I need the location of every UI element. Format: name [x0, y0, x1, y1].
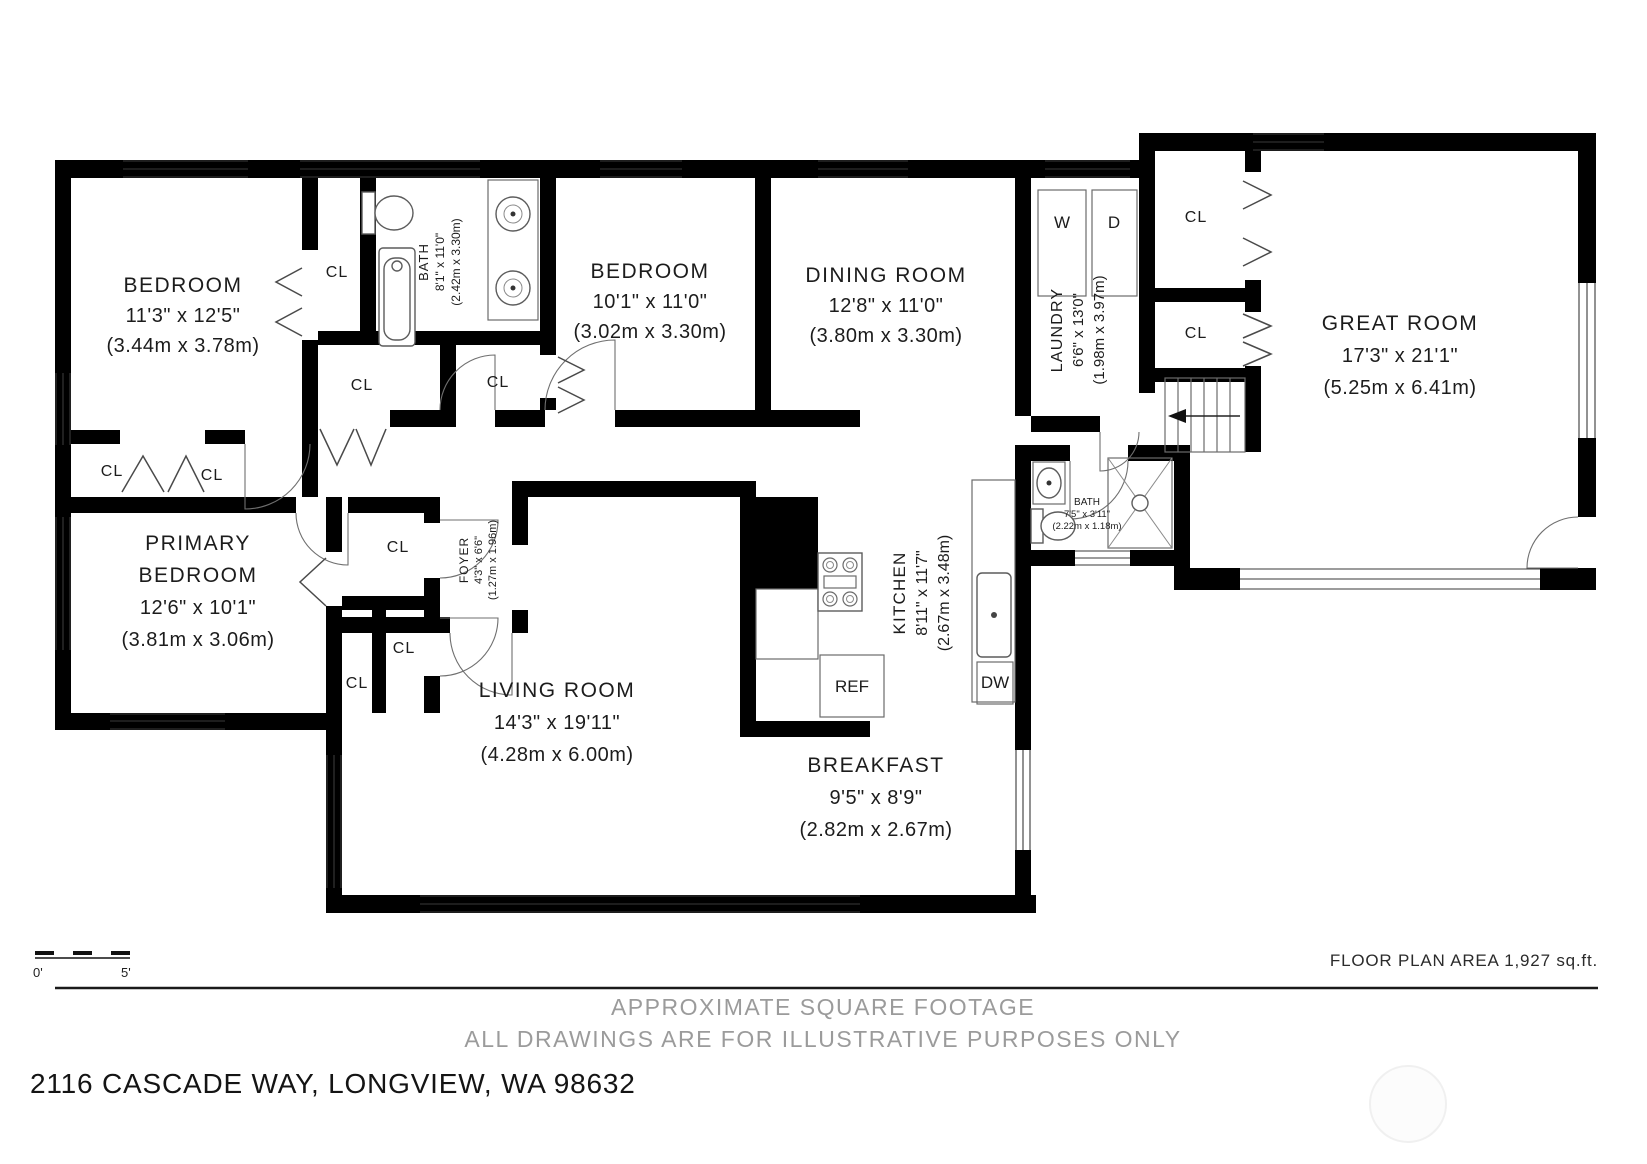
room-living-room: LIVING ROOM 14'3" x 19'11" (4.28m x 6.00… — [479, 679, 636, 766]
room-bedroom-2: BEDROOM 10'1" x 11'0" (3.02m x 3.30m) — [573, 260, 726, 343]
svg-text:(2.42m x 3.30m): (2.42m x 3.30m) — [449, 218, 463, 305]
bifold-icon — [320, 429, 354, 465]
svg-text:(3.02m x 3.30m): (3.02m x 3.30m) — [573, 321, 726, 343]
svg-text:CL: CL — [393, 640, 415, 657]
svg-text:(3.81m x 3.06m): (3.81m x 3.06m) — [121, 629, 274, 651]
svg-text:8'11" x 11'7": 8'11" x 11'7" — [914, 550, 931, 635]
bifold-icon — [122, 456, 164, 492]
svg-text:CL: CL — [1185, 209, 1207, 226]
refrigerator-label: REF — [835, 677, 869, 696]
svg-text:CL: CL — [326, 264, 348, 281]
floor-plan-area-note: FLOOR PLAN AREA 1,927 sq.ft. — [1330, 951, 1598, 970]
svg-text:(4.28m x 6.00m): (4.28m x 6.00m) — [480, 744, 633, 766]
stairs-arrow-head — [1168, 409, 1186, 423]
bifold-icon — [558, 357, 584, 383]
bifold-icon — [276, 268, 302, 296]
svg-text:(2.67m x 3.48m): (2.67m x 3.48m) — [936, 535, 953, 651]
svg-text:LAUNDRY: LAUNDRY — [1049, 288, 1066, 373]
door-arc-great-room — [1527, 517, 1578, 568]
svg-text:KITCHEN: KITCHEN — [890, 551, 909, 634]
room-laundry: LAUNDRY 6'6" x 13'0" (1.98m x 3.97m) — [1049, 275, 1108, 384]
property-address: 2116 CASCADE WAY, LONGVIEW, WA 98632 — [30, 1068, 636, 1099]
svg-text:BATH: BATH — [1074, 497, 1100, 508]
dryer-label: D — [1108, 213, 1120, 232]
shower-icon — [1108, 458, 1172, 548]
svg-text:CL: CL — [387, 539, 409, 556]
svg-text:7'5" x 3'11": 7'5" x 3'11" — [1064, 509, 1110, 520]
svg-text:17'3" x 21'1": 17'3" x 21'1" — [1342, 345, 1458, 367]
windows — [56, 134, 1595, 912]
svg-text:(5.25m x 6.41m): (5.25m x 6.41m) — [1323, 377, 1476, 399]
svg-text:14'3" x 19'11": 14'3" x 19'11" — [494, 712, 620, 734]
kitchen-sink-icon — [977, 573, 1011, 657]
svg-text:CL: CL — [351, 377, 373, 394]
walls — [55, 133, 1596, 913]
room-kitchen: KITCHEN 8'11" x 11'7" (2.67m x 3.48m) — [890, 535, 953, 651]
room-primary-bedroom: PRIMARY BEDROOM 12'6" x 10'1" (3.81m x 3… — [121, 532, 274, 651]
closet-door-marks — [122, 181, 1271, 606]
kitchen-counter — [756, 589, 818, 659]
bifold-icon — [300, 558, 326, 606]
svg-text:CL: CL — [201, 467, 223, 484]
svg-text:8'1" x 11'0": 8'1" x 11'0" — [433, 233, 447, 291]
svg-text:PRIMARY: PRIMARY — [145, 532, 251, 555]
svg-text:10'1" x 11'0": 10'1" x 11'0" — [593, 291, 708, 313]
bifold-icon — [276, 308, 302, 336]
room-dining: DINING ROOM 12'8" x 11'0" (3.80m x 3.30m… — [805, 264, 966, 347]
svg-text:(1.27m x 1.96m): (1.27m x 1.96m) — [487, 520, 499, 600]
svg-text:CL: CL — [101, 463, 123, 480]
svg-text:(3.80m x 3.30m): (3.80m x 3.30m) — [809, 325, 962, 347]
svg-text:CL: CL — [346, 675, 368, 692]
room-breakfast: BREAKFAST 9'5" x 8'9" (2.82m x 2.67m) — [799, 754, 952, 841]
svg-text:(2.22m x 1.18m): (2.22m x 1.18m) — [1052, 521, 1121, 532]
bathtub-icon — [379, 248, 415, 346]
floor-plan-canvas: BEDROOM 11'3" x 12'5" (3.44m x 3.78m) BE… — [0, 0, 1647, 1164]
bifold-icon — [1243, 342, 1271, 366]
stairs — [1165, 378, 1245, 452]
svg-text:CL: CL — [1185, 325, 1207, 342]
bifold-icon — [356, 429, 386, 465]
disclaimer-line-1: APPROXIMATE SQUARE FOOTAGE — [611, 994, 1035, 1020]
svg-text:(2.82m x 2.67m): (2.82m x 2.67m) — [799, 819, 952, 841]
washer-box — [1038, 190, 1086, 296]
disclaimer-line-2: ALL DRAWINGS ARE FOR ILLUSTRATIVE PURPOS… — [464, 1026, 1181, 1052]
bifold-icon — [558, 387, 584, 413]
double-sink-vanity-icon — [488, 180, 538, 320]
window — [1075, 551, 1130, 565]
svg-text:12'8" x 11'0": 12'8" x 11'0" — [829, 295, 944, 317]
scale-zero-label: 0' — [33, 965, 43, 980]
bifold-icon — [1243, 181, 1271, 209]
svg-text:CL: CL — [487, 374, 509, 391]
svg-text:(1.98m x 3.97m): (1.98m x 3.97m) — [1091, 275, 1108, 384]
svg-text:BEDROOM: BEDROOM — [590, 260, 709, 283]
stove-icon — [818, 553, 862, 611]
bifold-icon — [168, 456, 204, 492]
fixtures — [362, 180, 1245, 717]
bifold-icon — [1243, 314, 1271, 338]
svg-text:BREAKFAST: BREAKFAST — [807, 754, 944, 777]
bifold-icon — [1243, 238, 1271, 266]
scale-bar: 0' 5' — [33, 951, 131, 980]
washer-label: W — [1054, 213, 1070, 232]
svg-text:GREAT ROOM: GREAT ROOM — [1322, 312, 1479, 335]
room-bedroom-1: BEDROOM 11'3" x 12'5" (3.44m x 3.78m) — [106, 274, 259, 357]
watermark-circle — [1370, 1066, 1446, 1142]
room-great-room: GREAT ROOM 17'3" x 21'1" (5.25m x 6.41m) — [1322, 312, 1479, 399]
svg-text:9'5" x 8'9": 9'5" x 8'9" — [830, 787, 923, 809]
scale-five-label: 5' — [121, 965, 131, 980]
room-bath: BATH 8'1" x 11'0" (2.42m x 3.30m) — [416, 218, 463, 305]
window — [1240, 569, 1540, 589]
svg-text:11'3" x 12'5": 11'3" x 12'5" — [126, 305, 241, 327]
window — [1579, 283, 1595, 438]
svg-text:(3.44m x 3.78m): (3.44m x 3.78m) — [106, 335, 259, 357]
svg-text:BATH: BATH — [416, 243, 431, 281]
toilet-icon — [362, 192, 413, 234]
svg-text:BEDROOM: BEDROOM — [138, 564, 257, 587]
window — [1016, 750, 1030, 850]
dishwasher-label: DW — [981, 673, 1009, 692]
sink-icon — [1033, 462, 1065, 504]
room-foyer: FOYER 4'3" x 6'6" (1.27m x 1.96m) — [457, 520, 499, 600]
svg-text:DINING ROOM: DINING ROOM — [805, 264, 966, 287]
svg-text:BEDROOM: BEDROOM — [123, 274, 242, 297]
svg-text:LIVING ROOM: LIVING ROOM — [479, 679, 636, 702]
svg-text:4'3" x 6'6": 4'3" x 6'6" — [473, 536, 485, 584]
svg-text:12'6" x 10'1": 12'6" x 10'1" — [140, 597, 256, 619]
svg-text:6'6" x 13'0": 6'6" x 13'0" — [1070, 293, 1087, 367]
kitchen-wall-block — [756, 497, 818, 589]
svg-text:FOYER: FOYER — [457, 537, 471, 583]
